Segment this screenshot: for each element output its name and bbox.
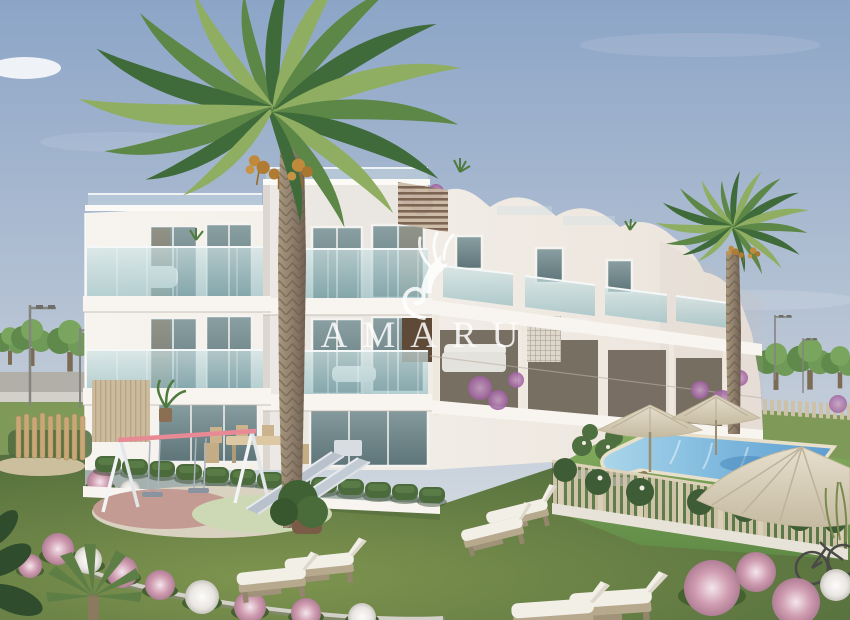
render-image: AMARU [0,0,850,620]
bougainvillea [829,395,847,413]
watermark-text: AMARU [321,315,534,356]
balcony-glass [298,351,428,397]
window [456,236,482,269]
roof-pergola [398,182,448,232]
timber-clad-wall [92,380,150,442]
